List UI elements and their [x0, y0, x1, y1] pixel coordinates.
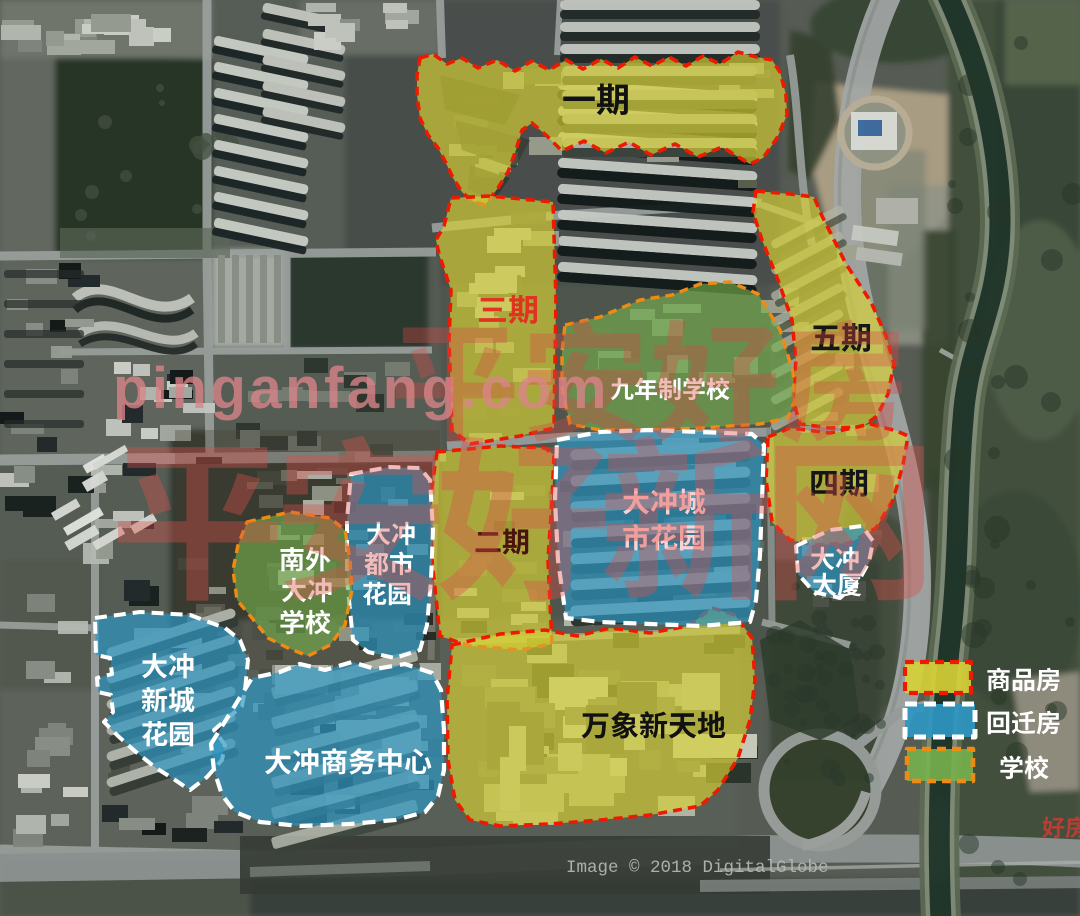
- svg-text:pinganfang.com: pinganfang.com: [113, 356, 610, 421]
- svg-text:Image © 2018 DigitalGlobe: Image © 2018 DigitalGlobe: [566, 858, 829, 878]
